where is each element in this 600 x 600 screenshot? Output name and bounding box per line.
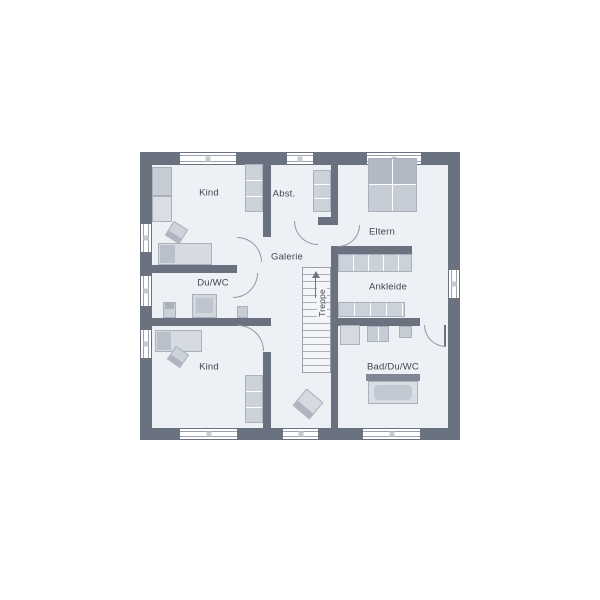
shower <box>192 294 217 318</box>
wall-kind-abst <box>263 165 271 237</box>
double-bed <box>368 158 417 212</box>
wall-stair-bad-left <box>331 246 338 428</box>
wardrobe-row <box>338 254 412 272</box>
window-icon <box>283 429 318 439</box>
sink <box>237 306 248 318</box>
dresser <box>152 196 172 222</box>
wall-abst-eltern <box>331 165 338 225</box>
wall-kind-duwc <box>140 265 237 273</box>
wall-kind2-right <box>263 352 271 428</box>
room-label-ankleide: Ankleide <box>369 282 407 293</box>
window-icon <box>141 224 151 252</box>
window-icon <box>449 270 459 298</box>
room-label-eltern: Eltern <box>369 227 395 238</box>
window-icon <box>141 276 151 306</box>
staircase <box>302 267 331 373</box>
stair-up-arrow-icon <box>312 271 320 278</box>
room-label-galerie: Galerie <box>271 252 303 263</box>
shelf <box>313 170 331 212</box>
wall-eltern-bottom <box>333 246 412 254</box>
bathtub <box>368 381 418 404</box>
shower <box>340 325 360 345</box>
cabinet <box>399 326 412 338</box>
floor-plan: Kind Abst. Eltern Galerie Du/WC Ankleide… <box>0 0 600 600</box>
room-label-duwc: Du/WC <box>197 278 229 289</box>
window-icon <box>287 153 313 164</box>
bed <box>158 243 212 265</box>
room-label-abst: Abst. <box>273 189 296 200</box>
window-icon <box>141 330 151 358</box>
wardrobe <box>245 164 263 212</box>
window-icon <box>363 429 420 439</box>
wardrobe <box>245 375 263 423</box>
double-sink <box>367 326 389 342</box>
window-icon <box>180 153 236 164</box>
room-label-bad: Bad/Du/WC <box>367 362 419 373</box>
wall-abst-bottom <box>318 217 338 225</box>
wardrobe-row <box>338 302 405 317</box>
wall-duwc-kind2 <box>140 318 271 326</box>
room-label-kind-top: Kind <box>199 188 219 199</box>
room-label-kind-bottom: Kind <box>199 362 219 373</box>
wardrobe <box>152 167 172 196</box>
bathtub-wall-ledge <box>366 374 420 381</box>
room-label-treppe: Treppe <box>317 287 327 319</box>
stair-direction-line <box>315 278 316 298</box>
window-icon <box>180 429 237 439</box>
toilet <box>163 302 176 318</box>
